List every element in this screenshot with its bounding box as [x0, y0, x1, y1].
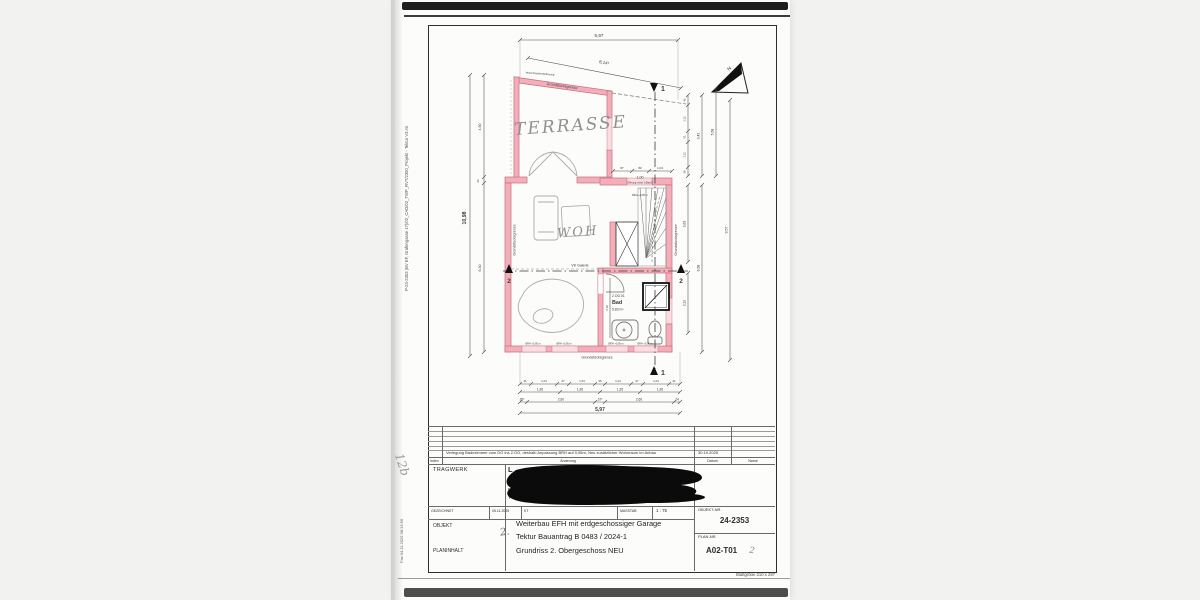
objekt-line1: Weiterbau EFH mit erdgeschossiger Garage — [516, 520, 661, 528]
sheet-size-note: Blattgröße 210 x 297 — [695, 573, 775, 578]
tb-line — [505, 464, 506, 571]
planinhalt-value: Grundriss 2. Obergeschoss NEU — [516, 547, 624, 555]
gezeichnet-by: KT — [524, 510, 528, 514]
tb-line — [521, 506, 522, 519]
tb-line — [489, 506, 490, 519]
scanned-floor-plan-document: Verlegung Badezimmer vom DG ins 2.OG, de… — [0, 0, 1200, 600]
objekt-nr-value: 24-2353 — [694, 517, 775, 526]
objekt-line2: Tektur Bauantrag B 0483 / 2024-1 — [516, 533, 627, 541]
gezeichnet-date: 05.11.2025 — [492, 510, 509, 514]
tb-line — [428, 446, 775, 447]
handwritten-tektur-number: 2. — [499, 526, 510, 538]
tragwerk-label: TRAGWERK — [433, 467, 468, 473]
revision-col-date: Datum — [694, 459, 731, 463]
margin-fax-stamp: Fax 04.11.2025 08:13:56 — [400, 487, 404, 563]
sheet-bottom-rule — [398, 578, 790, 579]
scan-top-rule — [404, 15, 790, 17]
revision-col-index: Index — [430, 459, 439, 463]
tb-line — [694, 426, 695, 571]
tb-line — [428, 436, 775, 437]
redacted-letter-1: L — [508, 466, 513, 474]
plan-nr-value: A02-T01 — [706, 547, 737, 556]
objekt-label: OBJEKT — [433, 524, 452, 530]
massstab-value: 1 : 75 — [656, 509, 667, 514]
tb-line — [428, 464, 775, 465]
tb-line — [652, 506, 653, 519]
revision-col-name: Name — [731, 459, 775, 463]
revision-entry-date: 30.10.2025 — [698, 451, 718, 455]
gezeichnet-label: GEZEICHNET — [431, 510, 454, 514]
drawing-frame — [428, 25, 777, 573]
scan-bottom-bar — [404, 588, 788, 597]
massstab-label: MASSTAB — [620, 510, 636, 514]
planinhalt-label: PLANINHALT — [433, 549, 463, 555]
margin-file-path: P-24-2353 (BV EF, Grafengasse 17)/02_CAD… — [405, 75, 410, 291]
revision-entry-text: Verlegung Badezimmer vom DG ins 2.OG, de… — [446, 451, 656, 455]
redacted-letter-2: In — [508, 477, 513, 484]
tb-line — [428, 426, 775, 427]
revision-col-change: Änderung — [442, 459, 694, 463]
redacted-letter-4: T — [508, 496, 511, 501]
scan-top-bar — [402, 2, 788, 10]
tb-line — [617, 506, 618, 519]
tb-line — [428, 431, 775, 432]
plan-nr-label: PLAN-NR. — [698, 535, 717, 539]
redacted-letter-3: R — [508, 488, 511, 493]
tb-line — [428, 506, 775, 507]
objekt-nr-label: OBJEKT-NR. — [698, 508, 722, 512]
tb-line — [428, 441, 775, 442]
